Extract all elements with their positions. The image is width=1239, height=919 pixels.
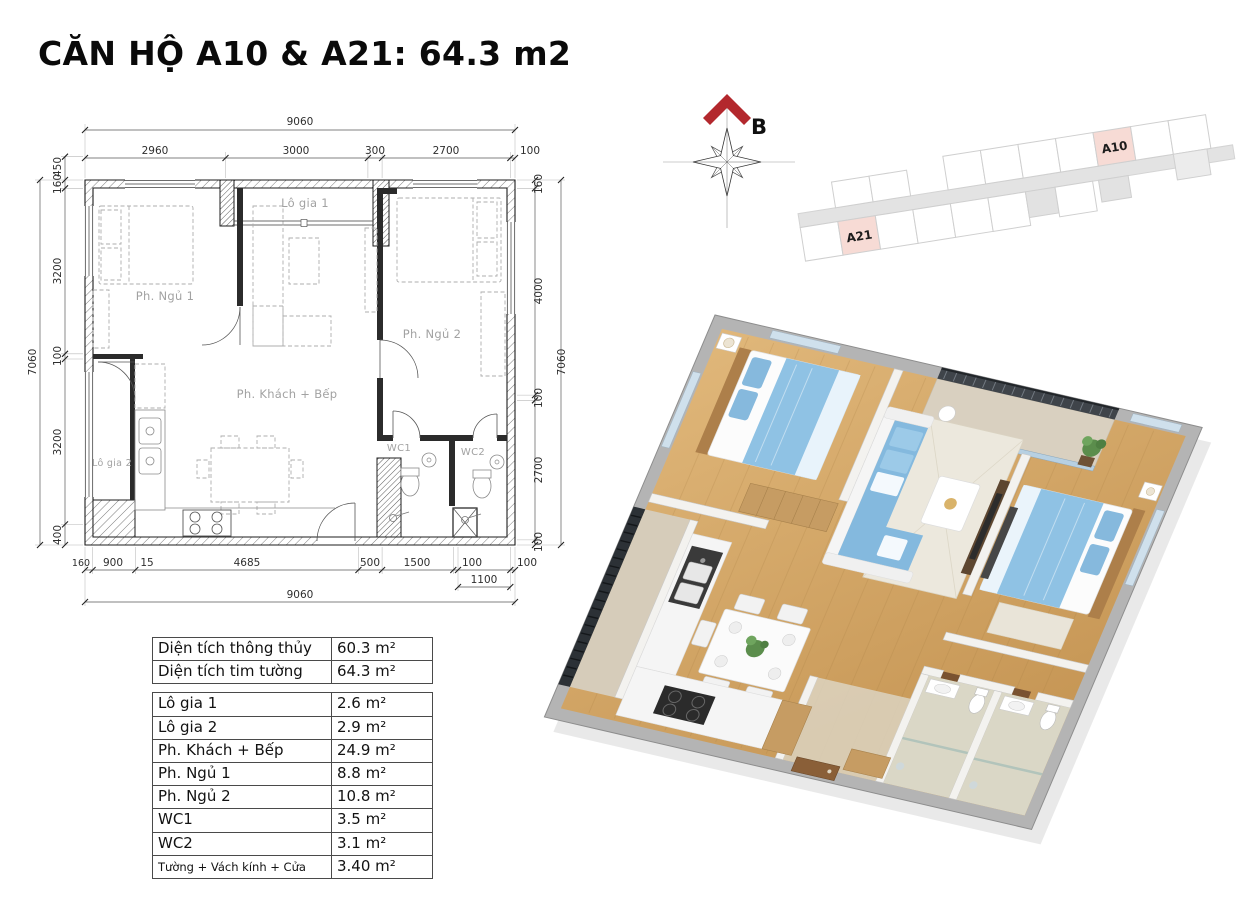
table-row: Ph. Ngủ 2 10.8 m² (153, 785, 432, 808)
area-table-summary: Diện tích thông thủy 60.3 m² Diện tích t… (152, 637, 433, 684)
dim-left-2: 3200 (52, 258, 64, 285)
area-value: 3.1 m² (332, 833, 432, 855)
area-value: 64.3 m² (332, 661, 432, 683)
room-label-ph-khach-bep: Ph. Khách + Bếp (237, 387, 338, 401)
area-label: Diện tích thông thủy (153, 638, 332, 660)
kitchen-fixtures (135, 410, 335, 536)
key-plan: A10 A21 (795, 95, 1239, 265)
area-label: Ph. Ngủ 1 (153, 763, 332, 785)
area-value: 2.9 m² (332, 717, 432, 739)
area-label: Ph. Ngủ 2 (153, 786, 332, 808)
dim-bottom-1: 900 (103, 557, 123, 569)
table-row: Diện tích tim tường 64.3 m² (153, 660, 432, 683)
wc-fixtures (390, 453, 505, 524)
dim-top-2: 300 (365, 145, 385, 157)
dim-bottom-2: 15 (140, 557, 153, 569)
interior-walls (93, 188, 507, 545)
table-row: Diện tích thông thủy 60.3 m² (153, 638, 432, 660)
table-row: Tường + Vách kính + Cửa 3.40 m² (153, 855, 432, 878)
dim-top-total: 9060 (287, 116, 314, 128)
area-label: Lô gia 2 (153, 717, 332, 739)
area-value: 8.8 m² (332, 763, 432, 785)
dim-left-3: 100 (52, 346, 64, 366)
dim-top-0: 2960 (142, 145, 169, 157)
dim-bottom-total: 9060 (287, 589, 314, 601)
area-table-rooms: Lô gia 1 2.6 m² Lô gia 2 2.9 m² Ph. Khác… (152, 692, 433, 879)
area-label: Ph. Khách + Bếp (153, 740, 332, 762)
dim-bottom-sub: 1100 (471, 574, 498, 586)
area-value: 10.8 m² (332, 786, 432, 808)
table-row: Ph. Khách + Bếp 24.9 m² (153, 739, 432, 762)
compass-rose: B (655, 82, 805, 232)
dim-bottom-3: 4685 (234, 557, 261, 569)
compass-north-label: B (751, 115, 767, 139)
dim-bottom-6: 100 (462, 557, 482, 569)
dim-top-1: 3000 (283, 145, 310, 157)
table-row: Ph. Ngủ 1 8.8 m² (153, 762, 432, 785)
area-label: WC2 (153, 833, 332, 855)
area-label: Lô gia 1 (153, 693, 332, 715)
dim-left-4: 3200 (52, 429, 64, 456)
render-3d (540, 295, 1239, 919)
area-table: Diện tích thông thủy 60.3 m² Diện tích t… (152, 637, 433, 879)
dim-left-5: 400 (52, 525, 64, 545)
table-row: Lô gia 1 2.6 m² (153, 693, 432, 715)
area-value: 3.40 m² (332, 856, 432, 878)
dim-bottom-7: 100 (517, 557, 537, 569)
dim-left-total: 7060 (27, 349, 39, 376)
area-value: 24.9 m² (332, 740, 432, 762)
dim-bottom-0: 160 (72, 558, 90, 569)
dim-top-4: 100 (520, 145, 540, 157)
room-label-ph-ngu-2: Ph. Ngủ 2 (403, 327, 461, 341)
area-label: Tường + Vách kính + Cửa (153, 856, 332, 878)
table-row: WC1 3.5 m² (153, 808, 432, 831)
area-value: 3.5 m² (332, 809, 432, 831)
room-label-wc1: WC1 (387, 443, 411, 454)
area-label: WC1 (153, 809, 332, 831)
page-title: CĂN HỘ A10 & A21: 64.3 m2 (38, 34, 571, 73)
dim-left-1: 160 (52, 174, 64, 194)
table-row: Lô gia 2 2.9 m² (153, 716, 432, 739)
dim-bottom-4: 500 (360, 557, 380, 569)
table-row: WC2 3.1 m² (153, 832, 432, 855)
area-value: 60.3 m² (332, 638, 432, 660)
area-value: 2.6 m² (332, 693, 432, 715)
dim-top-3: 2700 (433, 145, 460, 157)
area-label: Diện tích tim tường (153, 661, 332, 683)
room-label-lo-gia-2: Lô gia 2 (92, 458, 132, 469)
room-label-ph-ngu-1: Ph. Ngủ 1 (136, 289, 194, 303)
floor-plan-2d: 9060 2960 3000 300 2700 100 7060 450 160… (25, 110, 570, 625)
room-label-wc2: WC2 (461, 447, 485, 458)
dim-right-0: 160 (533, 174, 545, 194)
dim-bottom-5: 1500 (404, 557, 431, 569)
room-label-lo-gia-1: Lô gia 1 (281, 196, 329, 210)
